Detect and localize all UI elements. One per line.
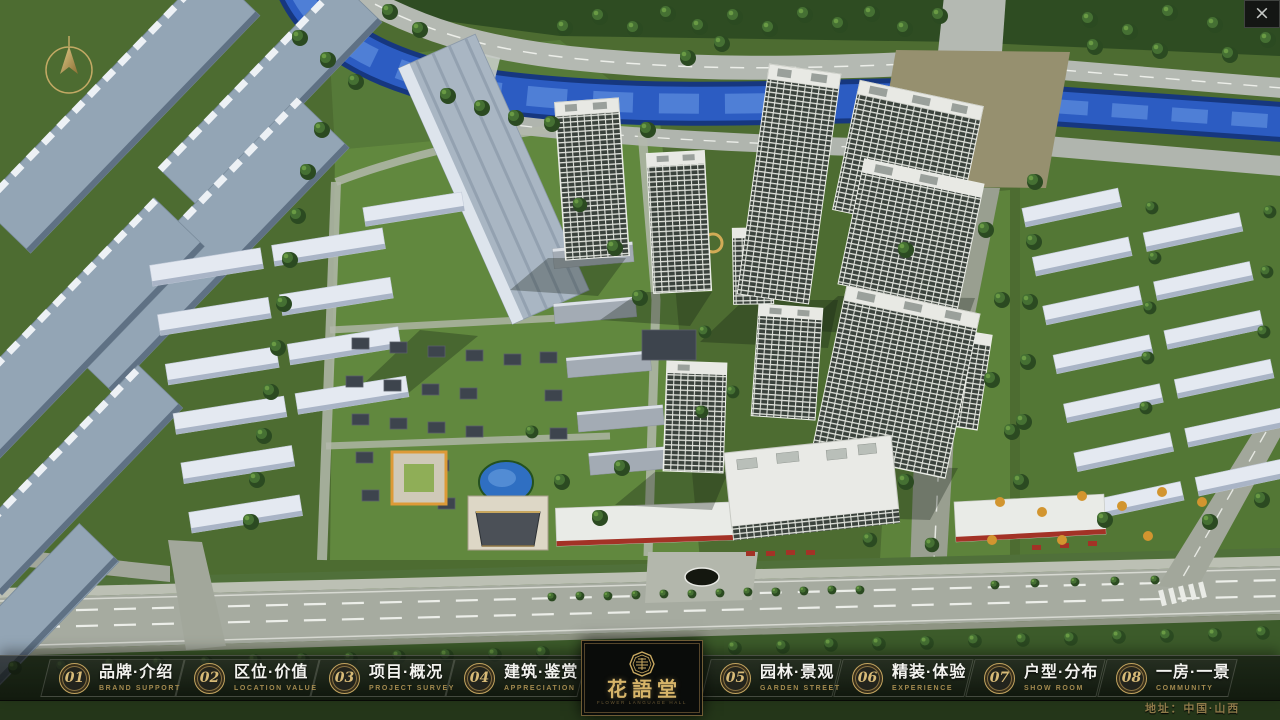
nav-item-floorplan-distribution[interactable]: 07 户型·分布 SHOW ROOM [970,656,1101,700]
compass-north-icon [40,34,98,98]
nav-number-badge: 07 [984,663,1015,694]
nav-item-architecture-appreciation[interactable]: 04 建筑·鉴赏 APPRECIATION [450,656,582,700]
nav-label: 园林·景观 [760,665,841,681]
nav-sublabel: APPRECIATION [504,685,578,692]
brand-name: 花語堂 [602,679,682,699]
nav-sublabel: LOCATION VALUE [234,685,318,692]
nav-sublabel: SHOW ROOM [1024,685,1098,692]
nav-label: 品牌·介绍 [99,665,181,681]
nav-item-location-value[interactable]: 02 区位·价值 LOCATION VALUE [180,656,315,700]
nav-label: 区位·价值 [234,665,318,681]
nav-number-badge: 05 [720,663,751,694]
nav-item-project-overview[interactable]: 03 项目·概况 PROJECT SURVEY [315,656,450,700]
nav-sublabel: PROJECT SURVEY [369,685,455,692]
nav-sublabel: EXPERIENCE [892,685,966,692]
nav-item-garden-landscape[interactable]: 05 园林·景观 GARDEN STREET [706,656,837,700]
sales-presentation-window: × 01 品牌·介绍 BRAND SUPPORT 02 区位·价值 LOCATI… [0,0,1280,720]
nav-sublabel: COMMUNITY [1156,685,1230,692]
nav-label: 户型·分布 [1024,665,1098,681]
nav-number-badge: 08 [1116,663,1147,694]
nav-sublabel: GARDEN STREET [760,685,841,692]
nav-label: 建筑·鉴赏 [504,665,578,681]
brand-seal-icon [629,651,655,677]
nav-item-brand-intro[interactable]: 01 品牌·介绍 BRAND SUPPORT [45,656,180,700]
nav-number-badge: 06 [852,663,883,694]
brand-caption: FLOWER LANGUAGE HALL [597,701,687,706]
nav-number-badge: 04 [464,663,495,694]
nav-number-badge: 01 [59,663,90,694]
close-icon: × [1254,2,1270,24]
nav-number-badge: 02 [194,663,225,694]
project-address: 地址：中国·山西 [1145,700,1240,716]
nav-number-badge: 03 [329,663,360,694]
nav-label: 一房·一景 [1156,665,1230,681]
nav-label: 项目·概况 [369,665,455,681]
masterplan-render [0,0,1280,720]
nav-item-one-room-one-view[interactable]: 08 一房·一景 COMMUNITY [1102,656,1233,700]
nav-sublabel: BRAND SUPPORT [99,685,181,692]
nav-label: 精装·体验 [892,665,966,681]
nav-item-interior-experience[interactable]: 06 精装·体验 EXPERIENCE [838,656,969,700]
brand-logo-tile: 花語堂 FLOWER LANGUAGE HALL [581,640,703,716]
close-button[interactable]: × [1244,0,1280,28]
